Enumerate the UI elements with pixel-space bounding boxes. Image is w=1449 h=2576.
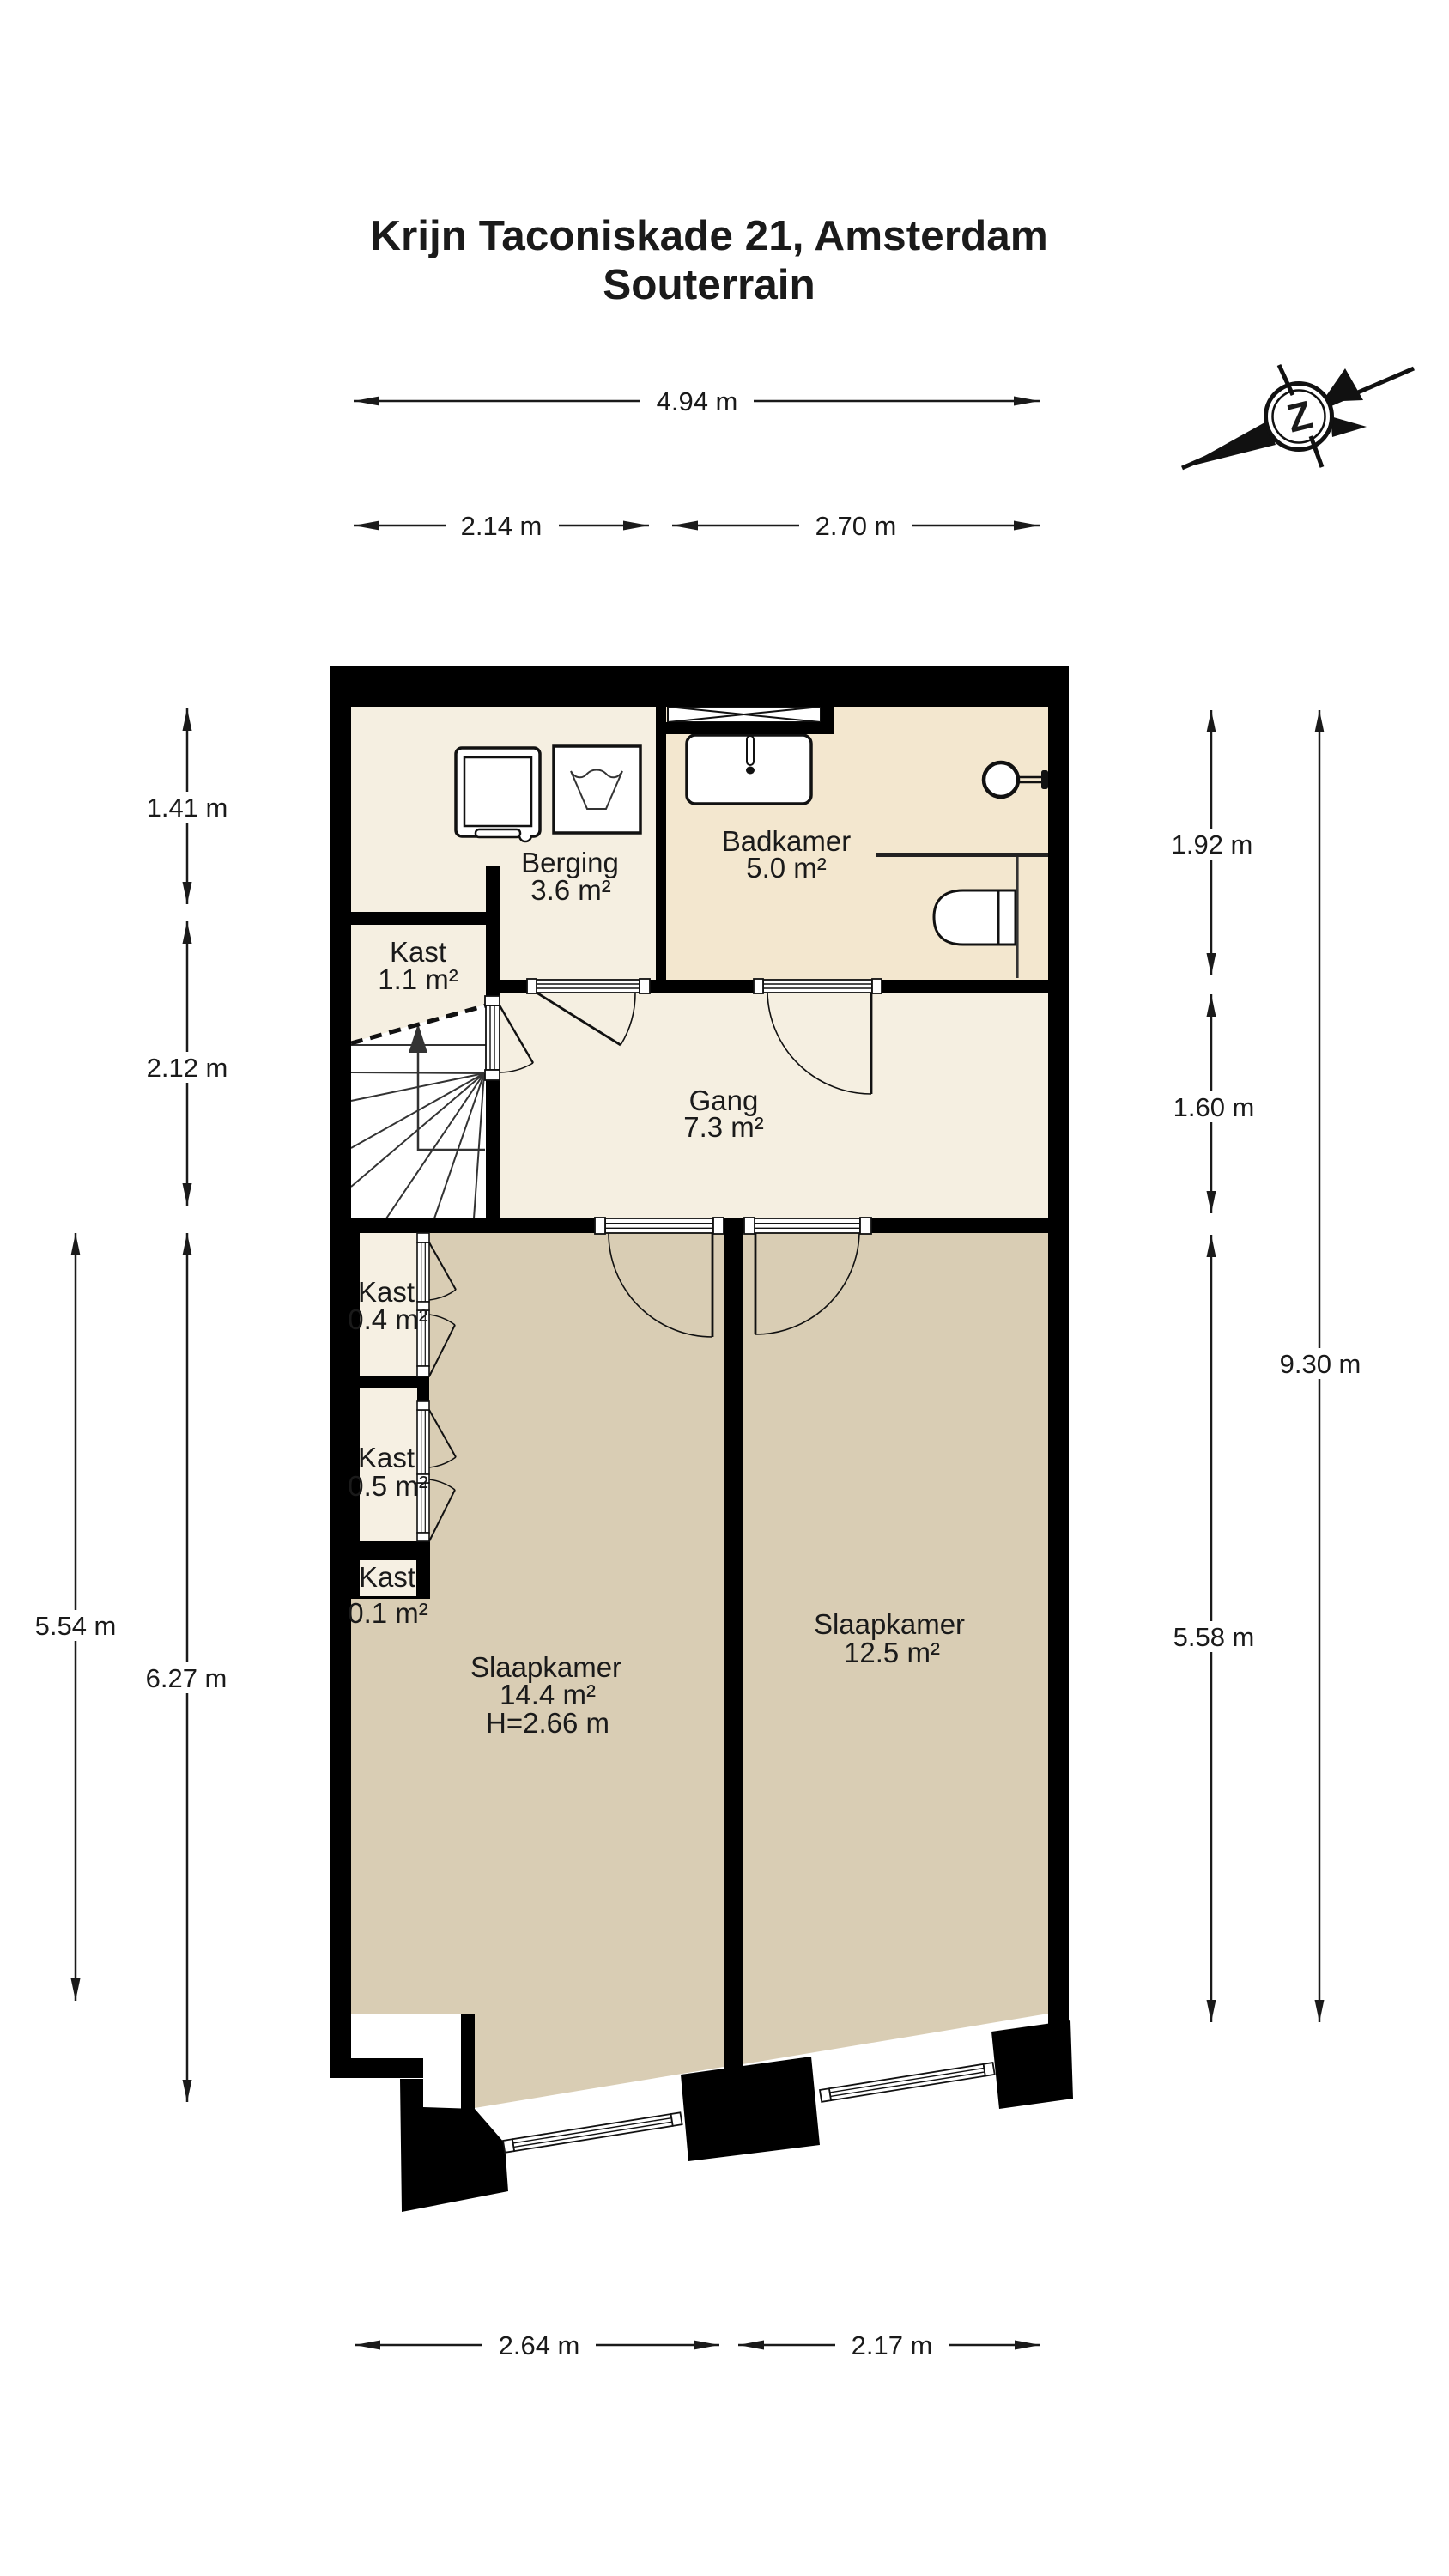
svg-text:Kast: Kast: [359, 1561, 415, 1593]
svg-text:9.30 m: 9.30 m: [1280, 1349, 1361, 1379]
svg-text:Krijn Taconiskade 21, Amsterda: Krijn Taconiskade 21, Amsterdam: [370, 212, 1048, 259]
svg-text:1.1 m²: 1.1 m²: [378, 963, 458, 995]
svg-text:7.3 m²: 7.3 m²: [683, 1111, 764, 1143]
svg-text:1.41 m: 1.41 m: [147, 793, 228, 823]
svg-text:Souterrain: Souterrain: [603, 261, 815, 308]
svg-text:4.94 m: 4.94 m: [657, 386, 738, 416]
svg-text:3.6 m²: 3.6 m²: [530, 874, 611, 906]
svg-text:5.54 m: 5.54 m: [35, 1611, 117, 1641]
svg-text:5.0 m²: 5.0 m²: [746, 852, 827, 884]
svg-text:6.27 m: 6.27 m: [146, 1663, 227, 1693]
svg-text:0.5 m²: 0.5 m²: [348, 1470, 428, 1502]
svg-text:12.5 m²: 12.5 m²: [844, 1637, 940, 1668]
svg-text:H=2.66 m: H=2.66 m: [486, 1707, 609, 1739]
svg-text:2.14 m: 2.14 m: [461, 511, 543, 541]
svg-text:Slaapkamer: Slaapkamer: [814, 1608, 965, 1640]
svg-text:1.92 m: 1.92 m: [1172, 829, 1253, 860]
svg-text:2.70 m: 2.70 m: [815, 511, 897, 541]
svg-text:2.12 m: 2.12 m: [147, 1053, 228, 1083]
svg-text:Kast: Kast: [358, 1442, 415, 1473]
svg-text:2.17 m: 2.17 m: [852, 2330, 933, 2360]
svg-text:0.4 m²: 0.4 m²: [348, 1303, 428, 1335]
svg-text:5.58 m: 5.58 m: [1173, 1622, 1255, 1652]
svg-text:14.4 m²: 14.4 m²: [500, 1679, 596, 1710]
svg-text:2.64 m: 2.64 m: [499, 2330, 580, 2360]
svg-text:0.1 m²: 0.1 m²: [348, 1597, 428, 1629]
svg-text:1.60 m: 1.60 m: [1173, 1092, 1255, 1122]
